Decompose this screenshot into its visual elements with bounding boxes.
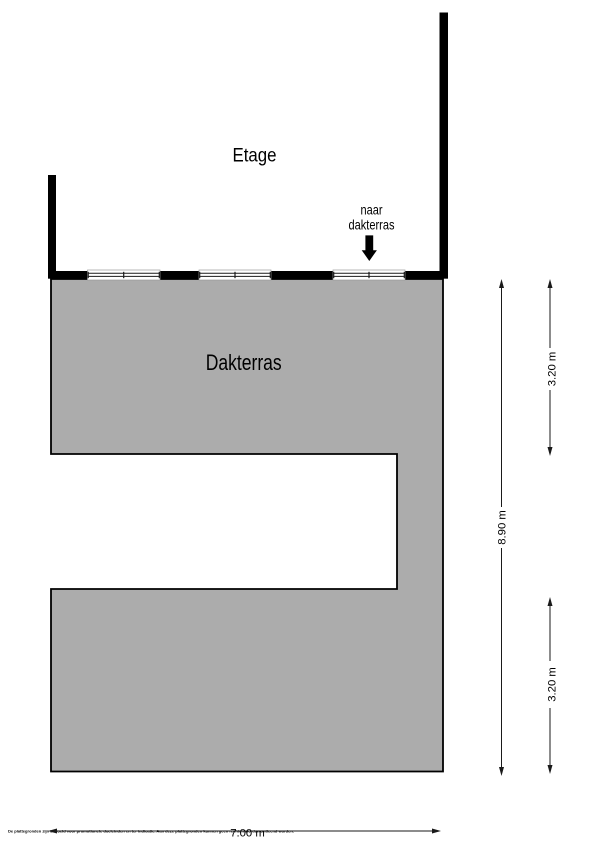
svg-text:3.20 m: 3.20 m [547,352,559,387]
svg-text:3.20 m: 3.20 m [547,667,559,702]
svg-text:naar: naar [361,201,383,217]
svg-text:7.00 m: 7.00 m [230,828,265,840]
svg-text:8.90 m: 8.90 m [497,510,509,545]
svg-text:dakterras: dakterras [349,216,395,232]
svg-text:Dakterras: Dakterras [206,350,282,375]
svg-text:Etage: Etage [233,146,277,167]
